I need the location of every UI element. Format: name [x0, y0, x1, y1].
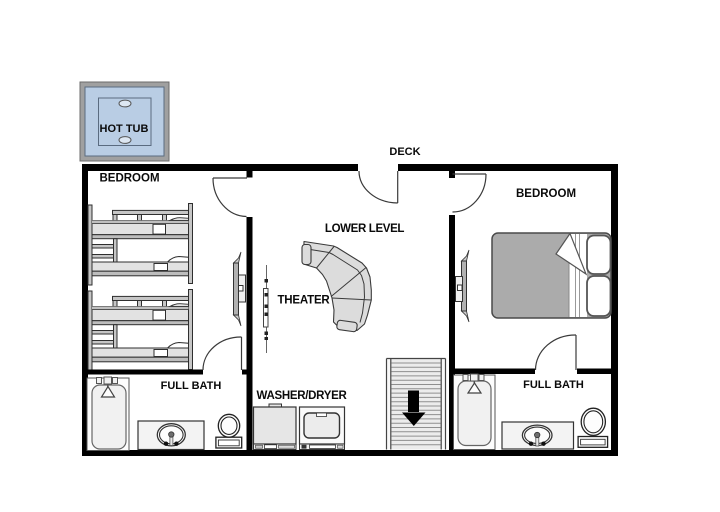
svg-text:FULL BATH: FULL BATH — [523, 379, 584, 391]
svg-text:DECK: DECK — [389, 146, 420, 158]
svg-text:FULL BATH: FULL BATH — [161, 380, 222, 392]
svg-text:BEDROOM: BEDROOM — [99, 173, 159, 185]
svg-text:THEATER: THEATER — [277, 294, 330, 306]
svg-text:LOWER LEVEL: LOWER LEVEL — [325, 223, 405, 235]
svg-text:BEDROOM: BEDROOM — [516, 188, 576, 200]
svg-text:HOT TUB: HOT TUB — [100, 123, 149, 135]
svg-text:WASHER/DRYER: WASHER/DRYER — [257, 390, 348, 402]
